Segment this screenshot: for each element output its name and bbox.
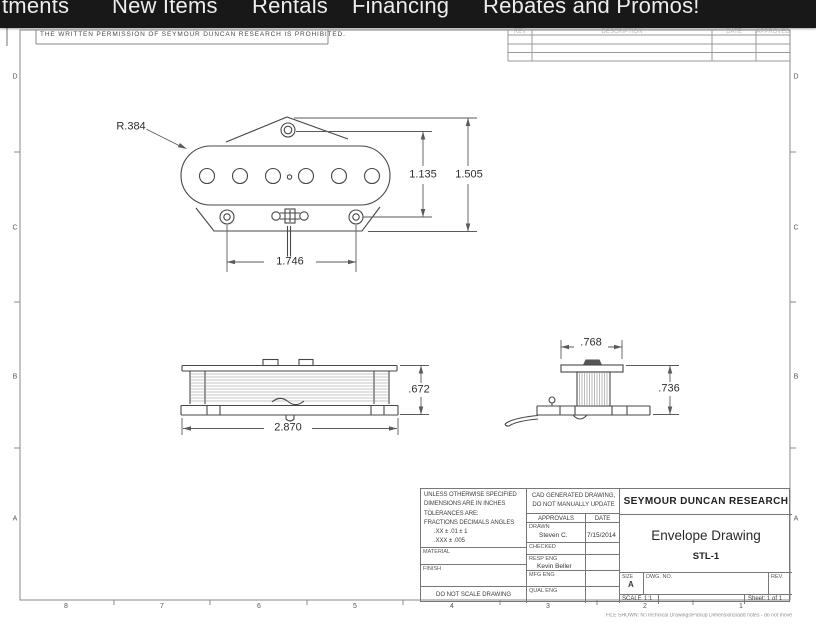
- dim-label-overall-height: 1.505: [454, 170, 484, 181]
- zone-letter-left-c: C: [12, 225, 17, 232]
- nav-item-departments[interactable]: tments: [2, 0, 69, 22]
- tolerance-line: .XX ± .01 ± 1: [424, 528, 517, 537]
- company-name: SEYMOUR DUNCAN RESEARCH: [624, 496, 789, 507]
- cad-note-line1: CAD GENERATED DRAWING,: [532, 492, 615, 501]
- size-dwg-rev-row: SIZE A DWG. NO. REV.: [620, 572, 792, 594]
- no-scale-cell: DO NOT SCALE DRAWING: [421, 586, 526, 603]
- zone-letter-left-a: A: [13, 516, 18, 523]
- drawn-label: DRAWN: [529, 524, 550, 530]
- weight-cell: [658, 595, 744, 604]
- zone-number-3: 3: [546, 603, 550, 610]
- drawn-row: DRAWN Steven C. 7/15/2014: [527, 522, 620, 542]
- dim-label-coil-height: .672: [407, 385, 430, 396]
- file-path-note: FILE SHOWN: N:\Technical Drawings\Pickup…: [606, 613, 792, 618]
- size-value: A: [628, 580, 634, 589]
- nav-item-rentals[interactable]: Rentals: [252, 0, 328, 22]
- end-view: [505, 360, 650, 427]
- material-label: MATERIAL: [423, 549, 450, 555]
- tolerance-block: UNLESS OTHERWISE SPECIFIED DIMENSIONS AR…: [421, 489, 526, 547]
- zone-number-7: 7: [160, 603, 164, 610]
- dim-label-end-height: .736: [657, 384, 680, 395]
- sheet-count-label: Sheet: 1 of 1: [748, 596, 782, 602]
- material-cell: MATERIAL: [421, 547, 526, 564]
- front-view-dimensions: [182, 366, 429, 436]
- page: tments New Items Rentals Financing Rebat…: [0, 0, 816, 630]
- checked-label: CHECKED: [529, 544, 556, 550]
- rev-col-description: DESCRIPTION: [601, 29, 642, 35]
- resp-eng-name: Kevin Beller: [537, 563, 572, 570]
- nav-item-new-items[interactable]: New Items: [112, 0, 218, 22]
- zone-letter-right-a: A: [794, 516, 799, 523]
- drawn-name: Steven C.: [539, 532, 568, 539]
- zone-letter-left-b: B: [13, 374, 18, 381]
- title-column: SEYMOUR DUNCAN RESEARCH Envelope Drawing…: [619, 489, 791, 603]
- arrowheads: [178, 118, 470, 264]
- mfg-eng-label: MFG ENG: [529, 572, 555, 578]
- dim-label-radius: R.384: [115, 122, 146, 133]
- dim-label-inner-height: 1.135: [408, 170, 438, 181]
- qual-eng-label: QUAL ENG: [529, 588, 557, 594]
- proprietary-notice: THE WRITTEN PERMISSION OF SEYMOUR DUNCAN…: [40, 31, 346, 38]
- arrowheads: [561, 345, 672, 415]
- drawn-date: 7/15/2014: [587, 532, 616, 539]
- no-scale-label: DO NOT SCALE DRAWING: [436, 592, 511, 598]
- tolerance-line: .XXX ± .005: [424, 537, 517, 546]
- revision-table-grid: [508, 30, 790, 61]
- zone-number-6: 6: [257, 603, 261, 610]
- site-nav-bar: tments New Items Rentals Financing Rebat…: [0, 0, 816, 28]
- dwg-no-label: DWG. NO.: [646, 574, 672, 580]
- rev-col-rev: REV: [514, 29, 526, 35]
- front-view: [181, 360, 398, 422]
- checked-row: CHECKED: [527, 542, 620, 554]
- end-view-dimensions: [561, 340, 679, 415]
- nav-item-financing[interactable]: Financing: [352, 0, 449, 22]
- drawing-title: Envelope Drawing: [651, 528, 761, 543]
- zone-number-1: 1: [739, 603, 743, 610]
- qual-eng-row: QUAL ENG: [527, 586, 620, 603]
- zone-letter-left-d: D: [12, 74, 17, 81]
- tolerance-line: TOLERANCES ARE:: [424, 510, 517, 519]
- cad-note-line2: DO NOT MANUALLY UPDATE: [532, 501, 614, 510]
- scale-value: 1:1: [644, 596, 652, 602]
- zone-number-2: 2: [643, 603, 647, 610]
- zone-number-4: 4: [450, 603, 454, 610]
- zone-number-8: 8: [64, 603, 68, 610]
- dim-label-base-width: 2.870: [273, 423, 303, 434]
- resp-eng-label: RESP ENG: [529, 556, 557, 562]
- dim-label-top-width: .768: [579, 338, 602, 349]
- scale-label: SCALE: [622, 596, 642, 602]
- approvals-column: CAD GENERATED DRAWING, DO NOT MANUALLY U…: [526, 489, 619, 603]
- tolerance-line: FRACTIONS DECIMALS ANGLES: [424, 519, 517, 528]
- finish-label: FINISH: [423, 566, 441, 572]
- rev-col-date: DATE: [726, 29, 742, 35]
- zone-letter-right-b: B: [794, 374, 799, 381]
- top-view: [181, 117, 390, 261]
- rev-label: REV.: [771, 574, 783, 580]
- tolerance-line: UNLESS OTHERWISE SPECIFIED: [424, 491, 517, 500]
- top-view-dimensions: [146, 118, 477, 272]
- part-number: STL-1: [693, 551, 719, 562]
- resp-eng-row: RESP ENG Kevin Beller: [527, 554, 620, 570]
- nav-item-rebates[interactable]: Rebates and Promos!: [483, 0, 700, 22]
- zone-letter-right-d: D: [793, 74, 798, 81]
- zone-number-5: 5: [353, 603, 357, 610]
- tolerance-line: DIMENSIONS ARE IN INCHES: [424, 500, 517, 509]
- title-block: UNLESS OTHERWISE SPECIFIED DIMENSIONS AR…: [420, 488, 790, 602]
- rev-col-approved: APPROVED: [756, 29, 789, 35]
- mfg-eng-row: MFG ENG: [527, 570, 620, 586]
- finish-cell: FINISH: [421, 564, 526, 586]
- dim-label-screw-spacing: 1.746: [275, 257, 305, 268]
- zone-letter-right-c: C: [793, 225, 798, 232]
- scale-sheet-row: SCALE 1:1 Sheet: 1 of 1: [620, 594, 792, 603]
